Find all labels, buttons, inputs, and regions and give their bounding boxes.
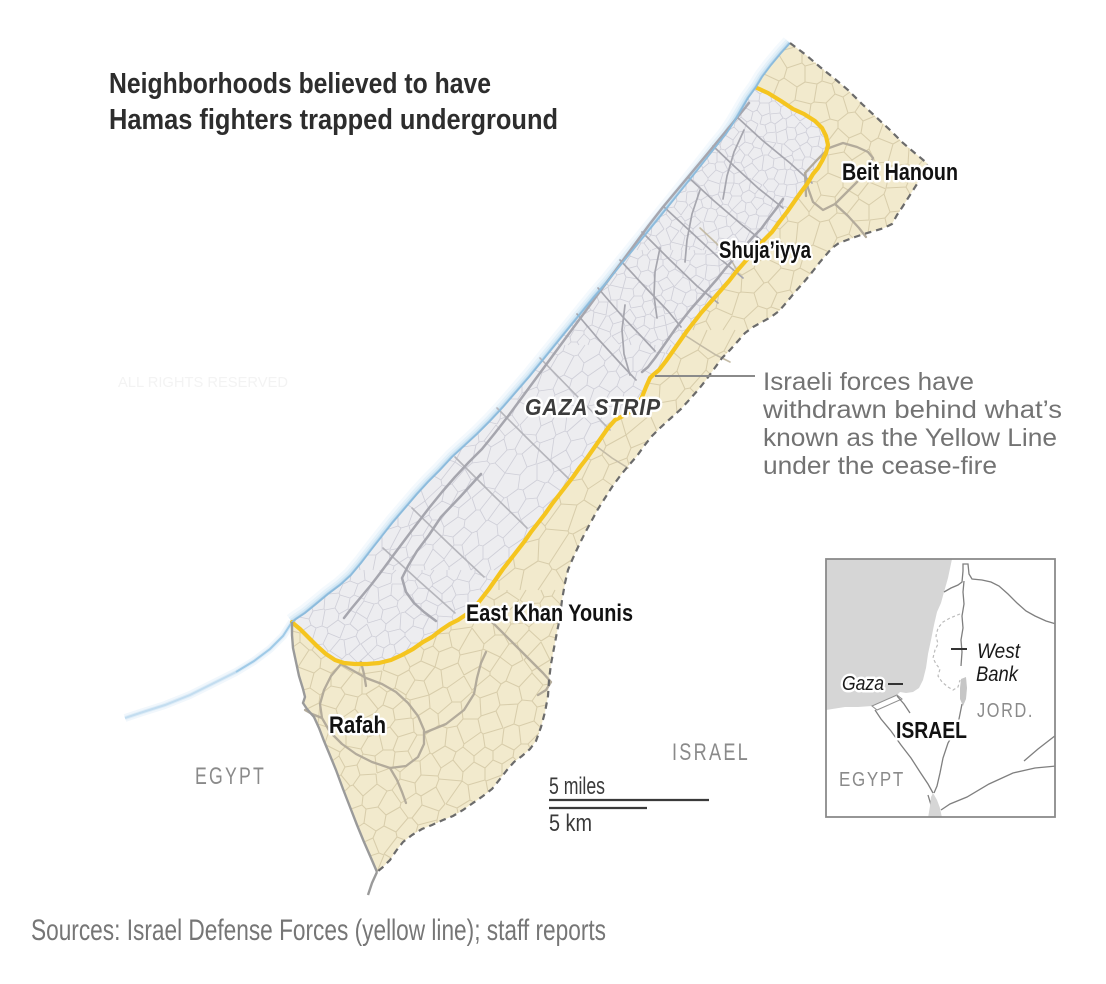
svg-text:West: West [977, 640, 1021, 663]
svg-text:ISRAEL: ISRAEL [896, 717, 967, 743]
svg-text:Beit Hanoun: Beit Hanoun [842, 159, 958, 186]
svg-text:Bank: Bank [976, 663, 1019, 686]
svg-text:5 miles: 5 miles [549, 773, 605, 800]
svg-text:Rafah: Rafah [329, 712, 386, 739]
svg-text:EGYPT: EGYPT [839, 769, 905, 791]
svg-text:known as the Yellow Line: known as the Yellow Line [763, 424, 1057, 452]
svg-text:JORD.: JORD. [977, 700, 1034, 722]
svg-text:ISRAEL: ISRAEL [672, 739, 750, 766]
svg-text:Neighborhoods believed to have: Neighborhoods believed to have [109, 68, 491, 100]
svg-text:EGYPT: EGYPT [195, 763, 266, 790]
svg-text:Hamas fighters trapped undergr: Hamas fighters trapped underground [109, 104, 558, 136]
svg-text:East Khan Younis: East Khan Younis [466, 600, 633, 627]
svg-text:Israeli forces have: Israeli forces have [763, 368, 974, 396]
svg-text:GAZA STRIP: GAZA STRIP [525, 394, 661, 420]
svg-text:ALL RIGHTS RESERVED: ALL RIGHTS RESERVED [118, 374, 288, 391]
svg-text:under the cease-fire: under the cease-fire [763, 452, 997, 480]
svg-text:Gaza: Gaza [842, 673, 884, 695]
svg-text:5 km: 5 km [549, 810, 592, 837]
svg-text:Sources: Israel Defense Forces: Sources: Israel Defense Forces (yellow l… [31, 914, 606, 947]
svg-text:withdrawn behind what’s: withdrawn behind what’s [762, 396, 1062, 424]
svg-text:Shuja’iyya: Shuja’iyya [719, 237, 811, 264]
